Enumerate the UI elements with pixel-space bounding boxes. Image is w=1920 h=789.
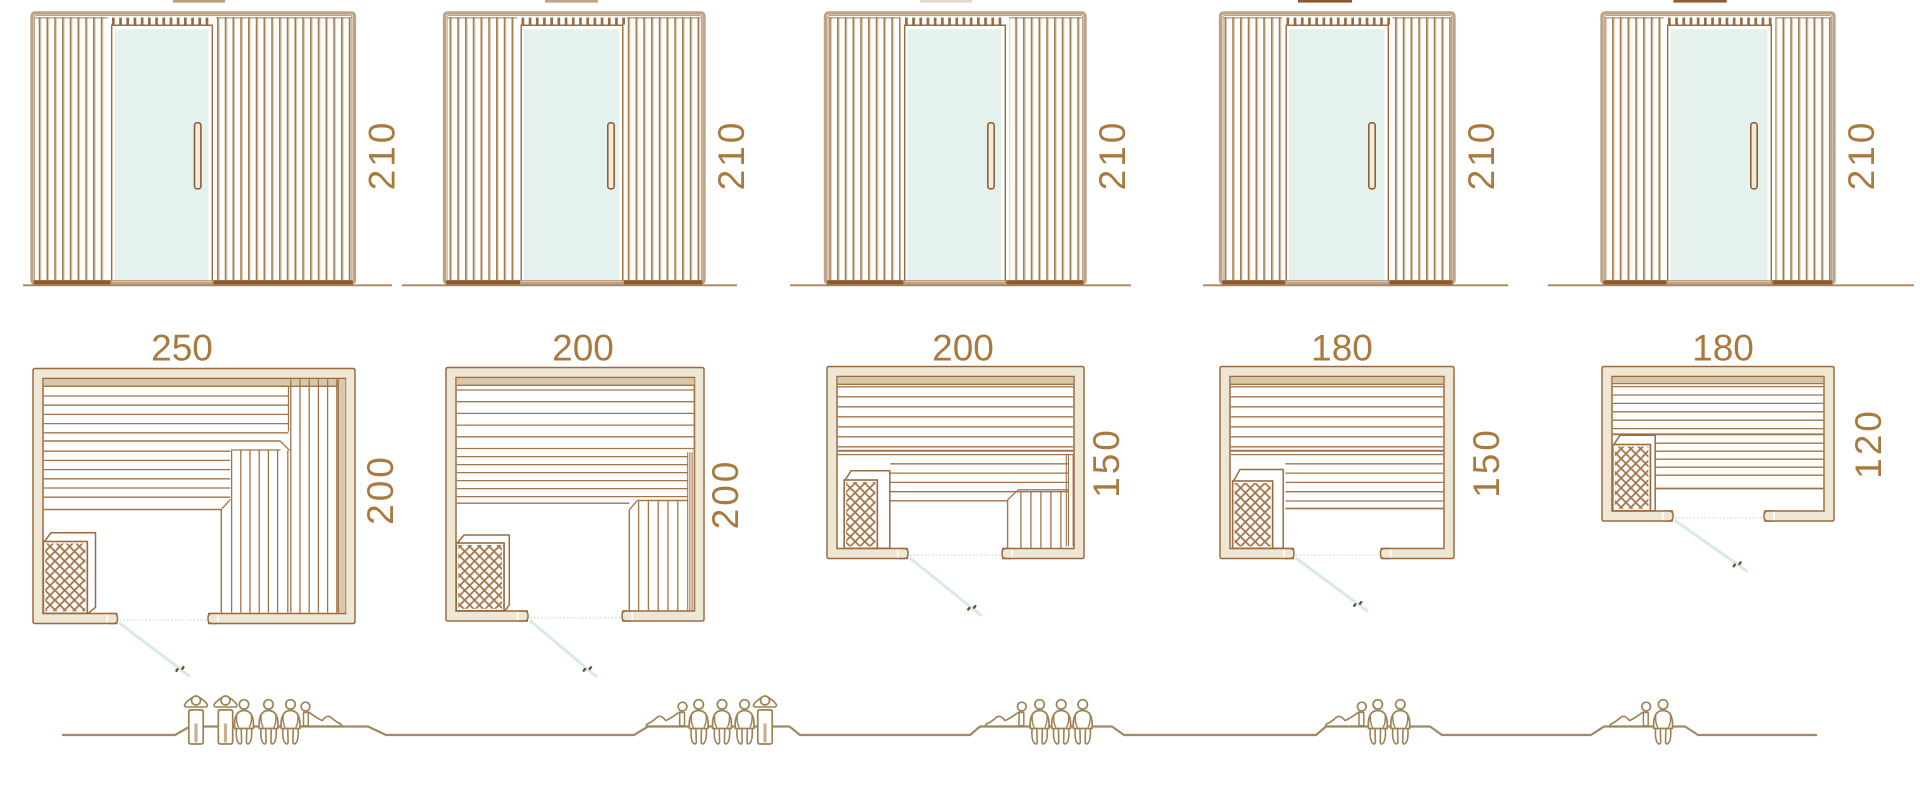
svg-text:150: 150 (1466, 427, 1507, 498)
svg-text:200: 200 (932, 328, 994, 369)
svg-text:210: 210 (362, 120, 403, 191)
svg-text:210: 210 (1841, 120, 1882, 191)
svg-text:250: 250 (151, 328, 213, 369)
svg-text:120: 120 (1848, 408, 1889, 479)
svg-text:210: 210 (711, 120, 752, 191)
svg-text:200: 200 (705, 459, 746, 530)
svg-text:180: 180 (1692, 328, 1754, 369)
svg-text:200: 200 (360, 454, 401, 525)
svg-text:210: 210 (1092, 120, 1133, 191)
svg-text:180: 180 (1311, 328, 1373, 369)
svg-text:210: 210 (1461, 120, 1502, 191)
svg-text:200: 200 (552, 328, 614, 369)
svg-text:150: 150 (1086, 427, 1127, 498)
